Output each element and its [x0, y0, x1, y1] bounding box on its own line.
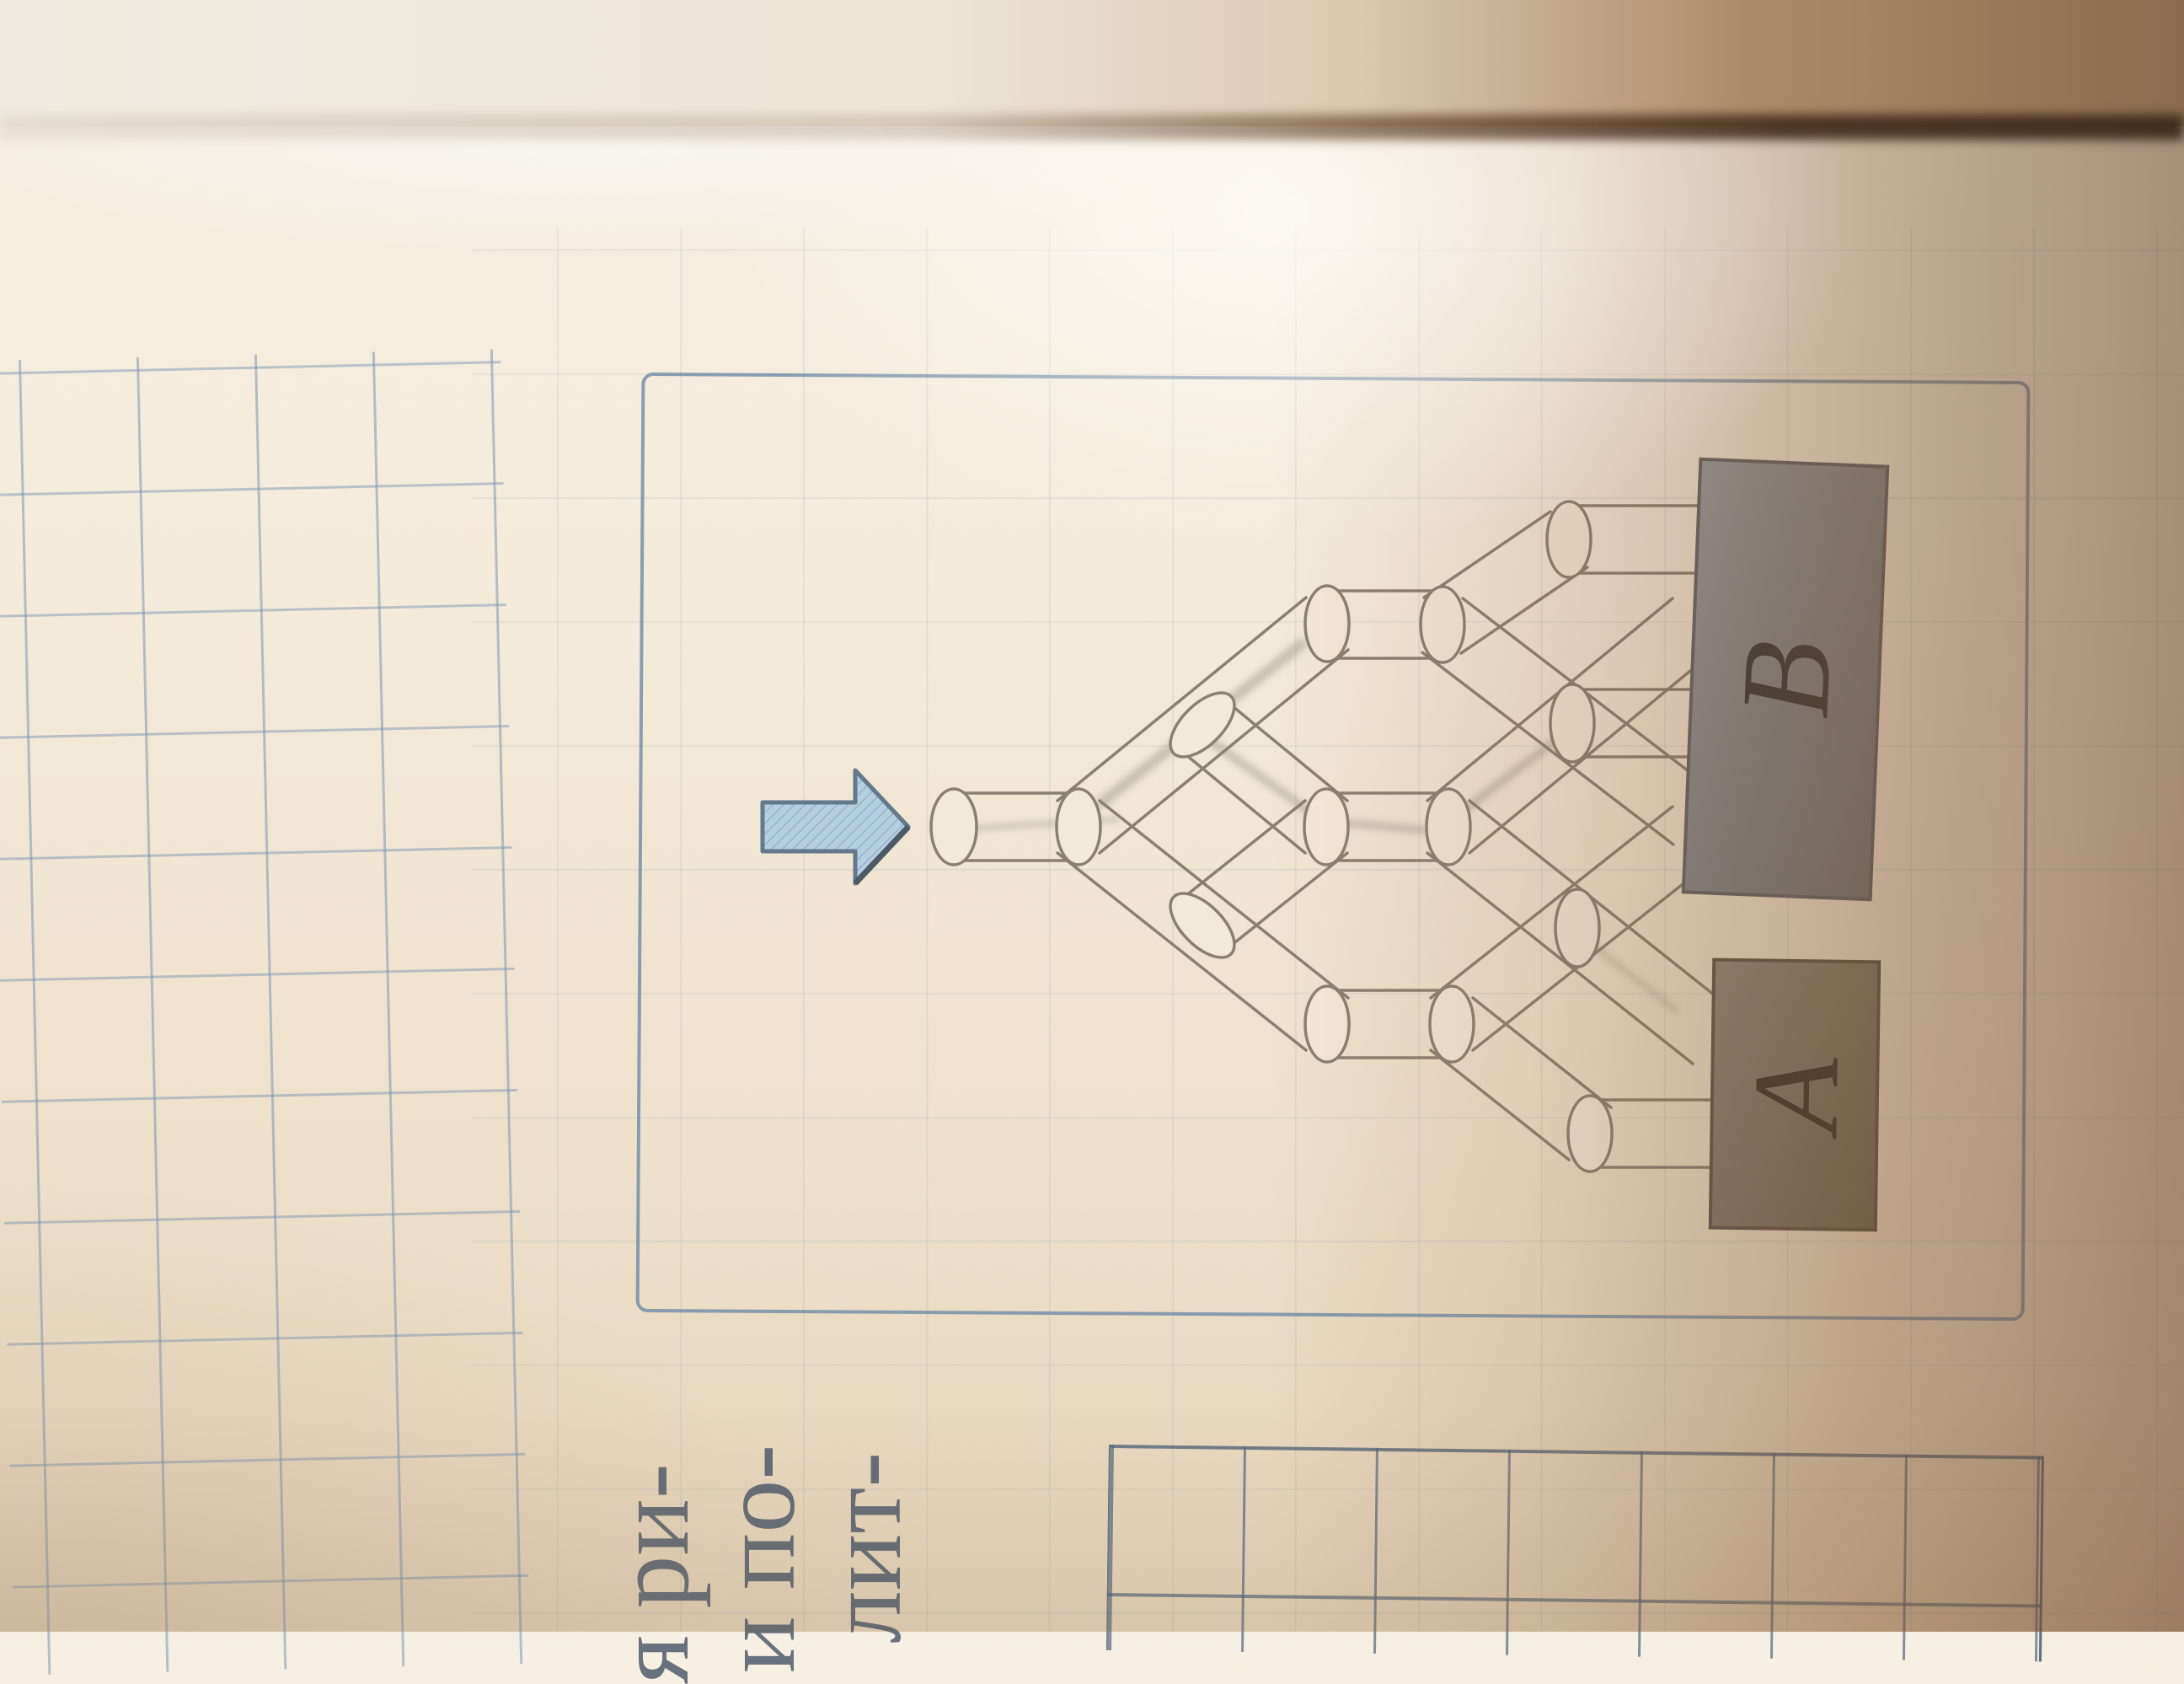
opening-top-left	[1305, 586, 1349, 662]
opening-mid-left	[1304, 789, 1348, 865]
background-above-page	[0, 0, 2184, 126]
opening-cross-lower	[1555, 889, 1599, 967]
flow-arrow-icon	[763, 770, 908, 883]
opening-split-lower	[1159, 882, 1245, 968]
opening-low-right	[1430, 986, 1474, 1062]
opening-entry	[931, 789, 977, 865]
container-a-box: A	[1710, 960, 1879, 1231]
photo-of-textbook-page: { "diagram": { "arrow_icon": "block-arro…	[0, 0, 2184, 1632]
text-line-fragment: и по-	[702, 1445, 816, 1673]
container-a-label: A	[1728, 1055, 1864, 1140]
pipe-network-diagram: B A	[0, 0, 2184, 1632]
opening-elbow-a	[1568, 1096, 1612, 1172]
text-line-fragment: лит-	[808, 1452, 923, 1644]
opening-top-right	[1421, 587, 1464, 662]
container-b-label: B	[1715, 638, 1858, 721]
opening-cross-upper	[1550, 684, 1594, 762]
opening-elbow-b	[1547, 501, 1591, 577]
container-b-box: B	[1683, 459, 1887, 899]
text-line-fragment: я ри-	[596, 1463, 710, 1684]
opening-junction	[1057, 789, 1100, 865]
opening-mid-right	[1427, 789, 1470, 865]
page-top-edge	[0, 115, 2184, 140]
opening-low-left	[1305, 986, 1349, 1062]
pipe-openings	[931, 501, 1612, 1172]
